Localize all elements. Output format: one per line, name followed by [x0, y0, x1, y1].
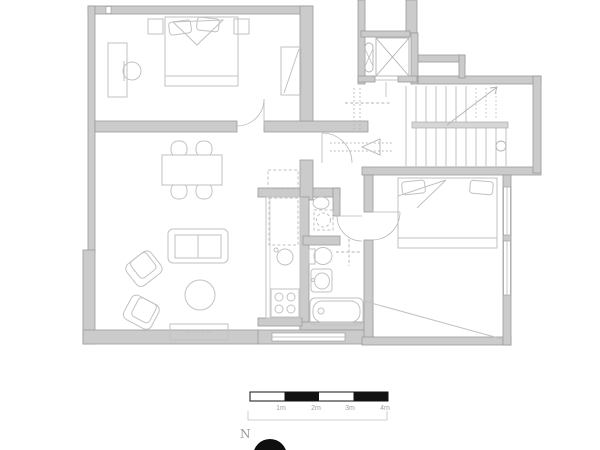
desk-chair [123, 62, 141, 80]
overhead-cabinet-2 [269, 198, 298, 245]
washing-machine-drum [317, 213, 331, 227]
kitchen-sink [277, 249, 293, 265]
entry-door-arc [322, 133, 352, 163]
staircase [345, 86, 508, 166]
bed1-blanket-fold [173, 20, 223, 45]
floor-plan-drawing: 1m 2m 3m 4m N [0, 0, 600, 450]
coffee-table [185, 280, 215, 310]
north-compass-circle [253, 439, 287, 450]
wall-bedroom2-left-lower [364, 240, 373, 344]
armchair-2 [121, 293, 161, 331]
nightstand-left [148, 19, 163, 34]
wall-bedroom1-bottom [95, 121, 237, 132]
wall-elevator-bottom-right [398, 76, 417, 82]
stove-burner-2 [287, 293, 295, 301]
washbasin-bowl [315, 273, 330, 289]
armchair-1 [123, 249, 164, 289]
floor-plan-canvas: 1m 2m 3m 4m N [0, 0, 600, 450]
scale-bar: 1m 2m 3m 4m [248, 392, 390, 420]
bathtub-inner [313, 301, 360, 322]
scale-bar-segment-black-2 [354, 392, 389, 401]
north-label: N [240, 427, 251, 441]
scale-bar-segment-black-1 [285, 392, 320, 401]
stove-burner-4 [287, 305, 295, 313]
wall-bedroom2-left-upper [364, 175, 373, 212]
wall-stair-right [533, 76, 541, 173]
scale-label-4m: 4m [380, 405, 390, 412]
wall-stair-top [418, 76, 541, 84]
kitchen-tap [274, 248, 278, 252]
entrance-marker-triangle [362, 139, 380, 155]
wall-kitchen-bath-divider [300, 197, 309, 330]
bed2-blanket-fold [398, 180, 446, 208]
bathtub-drain [318, 308, 324, 314]
wall-kitchen-top [258, 188, 340, 197]
window-break-top [106, 7, 111, 14]
bedroom2-door-arc [372, 212, 400, 240]
scale-label-3m: 3m [345, 405, 355, 412]
wall-elevator-bottom-left [358, 76, 375, 82]
stove-burner-3 [275, 305, 283, 313]
wall-hall-top [264, 121, 368, 132]
dining-table [162, 155, 222, 185]
stair-newel-post [496, 141, 506, 151]
stove [271, 289, 299, 317]
stove-burner-1 [275, 293, 283, 301]
laundry-basin [313, 197, 329, 209]
bed2-pillow-right [469, 180, 493, 195]
wall-bedroom2-top [362, 167, 541, 175]
wall-top-bedroom1 [88, 6, 312, 14]
bedroom2-diagonal-line [364, 301, 502, 339]
scale-label-1m: 1m [276, 405, 286, 412]
wall-elevator-top [361, 31, 410, 37]
wall-laundry-right [333, 188, 340, 216]
bedroom1-furniture [108, 17, 301, 97]
bed1-pillow-right [196, 17, 219, 32]
bed2-pillow-left [401, 180, 425, 195]
wall-hall-stub [300, 160, 313, 200]
wall-bedroom1-right [300, 6, 313, 121]
scale-bracket [248, 411, 387, 420]
north-indicator: N [240, 427, 287, 450]
living-dining-furniture [121, 141, 228, 340]
nightstand-right [234, 19, 249, 34]
bedroom2-furniture [364, 178, 502, 339]
overhead-cabinet-1 [268, 170, 298, 189]
toilet-bowl [314, 248, 332, 265]
walls [83, 0, 541, 345]
wardrobe-diagonal [284, 49, 299, 93]
wall-bedroom2-bottom [362, 337, 511, 345]
wall-elevator-right-upper [406, 0, 417, 33]
bathroom-door-arc [337, 216, 362, 241]
stair-direction-line [447, 87, 497, 125]
wall-laundry-bottom [303, 236, 340, 245]
wall-bottom-living [83, 330, 259, 344]
wall-left-upper [88, 6, 95, 252]
bedroom1-door-arc [237, 99, 264, 126]
wall-elevator-left [358, 0, 365, 84]
wall-kitchen-bottom [258, 318, 302, 326]
scale-label-2m: 2m [311, 405, 321, 412]
elevator [365, 38, 409, 97]
washbasin-tap [312, 279, 315, 282]
wall-niche-connector [459, 55, 465, 78]
stair-handrail [412, 122, 508, 128]
wall-niche-band [418, 55, 465, 62]
